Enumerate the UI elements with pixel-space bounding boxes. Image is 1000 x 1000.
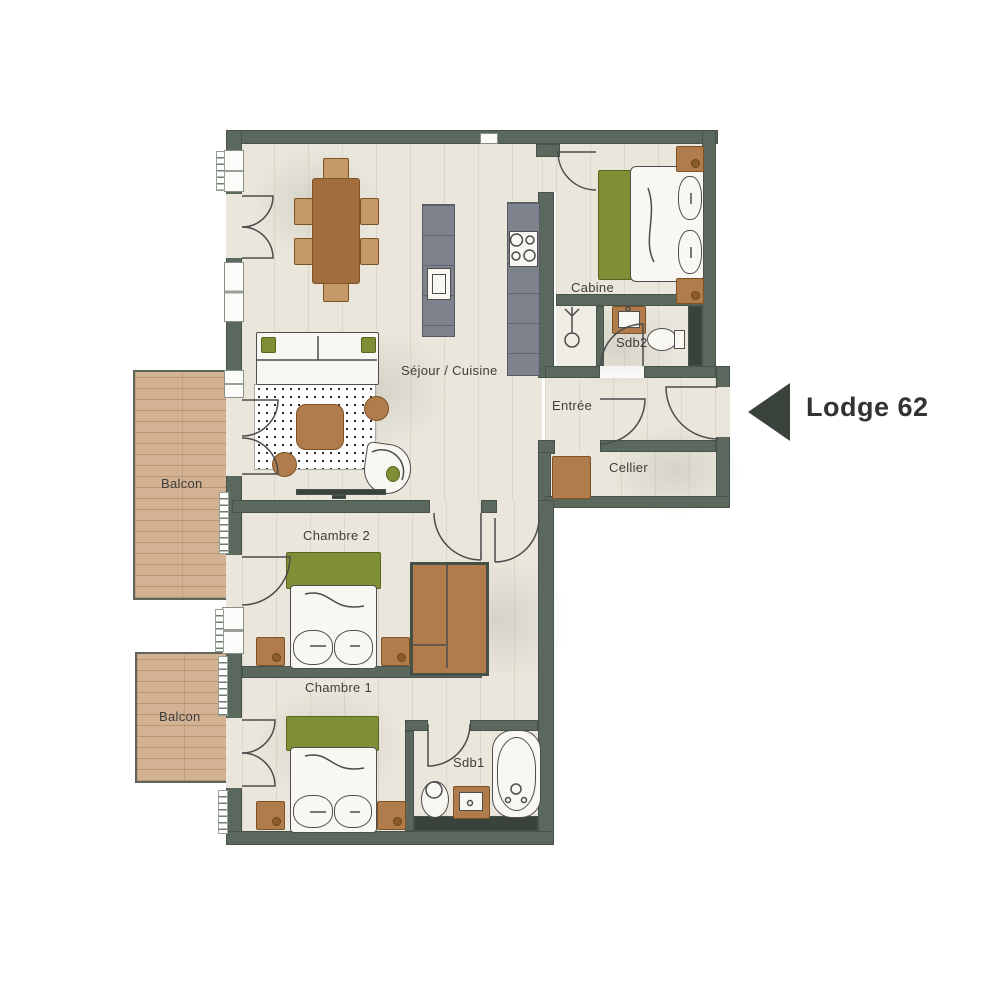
cooktop — [509, 231, 538, 267]
wall-duct-shaft — [688, 306, 702, 366]
dining-chair — [323, 282, 349, 302]
toilet-tank-sdb2 — [674, 330, 685, 349]
room-label-cabine: Cabine — [571, 281, 614, 294]
shower-floor — [556, 306, 596, 366]
nightstand — [256, 637, 285, 666]
room-label-sejour: Séjour / Cuisine — [401, 364, 498, 377]
pouf — [364, 396, 389, 421]
room-label-chambre1: Chambre 1 — [305, 681, 372, 694]
sofa-cushion — [261, 337, 276, 353]
room-label-sdb2: Sdb2 — [616, 336, 648, 349]
pillow — [334, 630, 373, 665]
room-label-balcon1: Balcon — [161, 477, 203, 490]
wall-bottom — [226, 831, 554, 845]
wardrobe — [410, 562, 489, 676]
wall-sdb1-left — [405, 731, 414, 831]
nightstand — [256, 801, 285, 830]
door-gap-chambre1-balcony — [226, 718, 242, 788]
pouf — [272, 452, 297, 477]
bathtub-inner — [497, 737, 536, 811]
armchair-cushion — [386, 466, 400, 482]
sofa-cushion — [361, 337, 376, 353]
bed-headboard-chambre1 — [286, 716, 379, 751]
wall-sdb2-bottom-left — [545, 366, 600, 378]
sink-basin-sdb2 — [618, 311, 640, 328]
toilet-sdb2 — [647, 328, 677, 351]
pillow — [678, 230, 702, 274]
bed-headboard-cabine — [598, 170, 632, 280]
room-label-sdb1: Sdb1 — [453, 756, 485, 769]
nightstand — [676, 146, 704, 172]
nightstand — [381, 637, 410, 666]
window — [224, 262, 244, 322]
floor-plan: Séjour / Cuisine Cabine Sdb2 Entrée Cell… — [0, 0, 1000, 1000]
nightstand — [676, 278, 704, 304]
door-gap-french-sejour — [226, 194, 242, 258]
left-arrow-icon — [748, 383, 790, 441]
dining-chair — [294, 198, 313, 225]
window — [480, 133, 498, 144]
dining-chair — [360, 198, 379, 225]
wall-sdb2-bottom-right — [644, 366, 716, 378]
pillow — [293, 795, 333, 828]
unit-marker-label: Lodge 62 — [806, 392, 929, 423]
door-gap-entrance — [716, 387, 730, 437]
window-frame-ticks — [215, 609, 224, 652]
storage-cabinet-cellier — [552, 456, 591, 499]
kitchen-counter — [507, 202, 540, 376]
dining-chair — [360, 238, 379, 265]
window-frame-ticks — [219, 492, 229, 554]
toilet-sdb1 — [421, 781, 449, 818]
room-label-balcon2: Balcon — [159, 710, 201, 723]
wall-cabine-door-post — [536, 144, 560, 157]
room-label-chambre2: Chambre 2 — [303, 529, 370, 542]
door-gap-balcony1 — [226, 398, 242, 476]
pillow — [293, 630, 333, 665]
wall-kitchen — [538, 192, 554, 378]
window — [224, 370, 244, 398]
window — [224, 150, 244, 192]
wall-right-upper — [702, 130, 716, 378]
room-label-cellier: Cellier — [609, 461, 648, 474]
wall-top — [232, 130, 718, 144]
window — [222, 607, 244, 654]
vanity-basin-sdb1 — [459, 792, 483, 811]
window-frame-ticks — [218, 656, 228, 716]
kitchen-sink-basin — [432, 274, 446, 294]
dining-chair — [294, 238, 313, 265]
window-frame-ticks — [216, 151, 225, 191]
pillow — [334, 795, 372, 828]
nightstand — [377, 801, 406, 830]
wall-sdb1-top-left — [405, 720, 428, 731]
bed-headboard-chambre2 — [286, 552, 381, 589]
dining-table — [312, 178, 360, 284]
door-gap-chambre2-balcony — [226, 555, 242, 607]
wall-sdb1-top-right — [470, 720, 538, 731]
pillow — [678, 176, 702, 220]
wall-shower-partition — [596, 306, 604, 366]
room-label-entree: Entrée — [552, 399, 592, 412]
dining-chair — [323, 158, 349, 180]
wall-sejour-post — [481, 500, 497, 513]
tv-stand — [332, 495, 346, 499]
coffee-table — [296, 404, 344, 450]
window-frame-ticks — [218, 790, 228, 834]
wall-cellier-top — [600, 440, 716, 452]
wall-sejour-bottom — [232, 500, 430, 513]
